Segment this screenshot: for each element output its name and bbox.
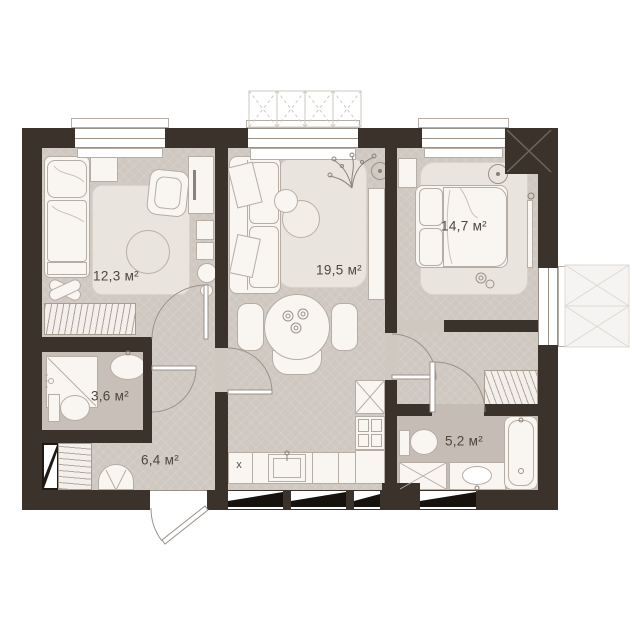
- dining-chair: [237, 303, 264, 351]
- doorway-hall: [385, 333, 397, 380]
- coffee-table-small: [274, 189, 298, 213]
- burner: [371, 419, 382, 432]
- sink: [110, 354, 146, 380]
- burner: [358, 434, 369, 447]
- floor-plan: 12,3 м² 19,5 м² 14,7 м² 3,6 м² 6,4 м² 5,…: [0, 0, 632, 632]
- room-label-bathroom: 5,2 м²: [445, 434, 483, 449]
- bed-throw: [47, 262, 87, 275]
- toilet-bowl: [60, 395, 90, 421]
- wall-left: [22, 128, 42, 510]
- toilet-tank: [399, 430, 410, 456]
- room-label-living-room: 19,5 м²: [316, 263, 362, 278]
- bed-pillow: [47, 160, 87, 198]
- wall-child-shower: [42, 337, 152, 352]
- window: [248, 128, 358, 148]
- window-sill: [246, 120, 360, 128]
- window-sill: [418, 118, 509, 128]
- wall-child-living: [215, 148, 228, 490]
- armchair-cushion: [153, 176, 182, 211]
- wall-kitchen-hall: [385, 380, 397, 490]
- counter-seam: [338, 453, 339, 483]
- wall-shower-right: [143, 352, 152, 430]
- burner: [371, 434, 382, 447]
- doorway-kitchen: [215, 348, 228, 392]
- doorway-bathroom: [432, 404, 484, 416]
- kitchen-sink-basin: [273, 458, 301, 478]
- balcony-door-window: [538, 268, 558, 345]
- bedroom-lamp-dot: [496, 172, 500, 176]
- wall-shower-hall: [42, 430, 152, 443]
- desk-drawer: [196, 220, 214, 240]
- counter-seam: [252, 453, 253, 483]
- room-label-shower-room: 3,6 м²: [91, 389, 129, 404]
- bed-pillow: [419, 188, 443, 226]
- mirror: [527, 200, 533, 268]
- floor-lamp-dot: [378, 169, 382, 173]
- toilet-tank: [48, 394, 60, 422]
- bathtub-inner: [508, 420, 534, 486]
- counter-end: [355, 450, 385, 484]
- balcony-right: [565, 265, 629, 347]
- bed-pillow: [419, 228, 443, 266]
- rug-circle-decor: [126, 230, 170, 274]
- bed-blanket: [47, 200, 87, 262]
- counter-seam: [312, 453, 313, 483]
- corner-column: [505, 128, 558, 174]
- toy-icon: [200, 284, 213, 297]
- wall-shelf: [368, 188, 385, 300]
- window-sill: [71, 118, 169, 128]
- entrance-door: [151, 506, 208, 544]
- desk-chair: [197, 263, 217, 283]
- wardrobe: [44, 303, 136, 335]
- bedside-shelf: [90, 156, 118, 182]
- bath-sink: [462, 466, 492, 485]
- stove-marker: х: [236, 459, 242, 471]
- wall-bath-right: [484, 404, 538, 416]
- wall-living-bedroom: [385, 148, 397, 333]
- wall-bottom-pillar: [382, 483, 420, 510]
- nightstand: [398, 158, 417, 188]
- burner: [358, 419, 369, 432]
- hall-wardrobe: [58, 443, 92, 490]
- doorway-bedroom: [397, 320, 444, 332]
- entrance-opening: [150, 490, 207, 510]
- shaft-void: [42, 443, 58, 490]
- room-label-child-bedroom: 12,3 м²: [93, 269, 139, 284]
- radiator: [250, 148, 356, 160]
- wall-bedroom-hall: [444, 320, 538, 332]
- room-label-hallway: 6,4 м²: [141, 453, 179, 468]
- toilet-bowl: [410, 429, 438, 455]
- tall-cabinet: [355, 380, 385, 414]
- bathtub-drain: [518, 468, 524, 474]
- radiator: [424, 148, 503, 158]
- desk: [188, 156, 214, 214]
- window: [422, 128, 505, 148]
- dining-chair: [331, 303, 358, 351]
- dining-table: [264, 294, 330, 360]
- window-sill: [558, 266, 566, 347]
- room-label-bedroom: 14,7 м²: [441, 219, 487, 234]
- desk-drawer: [196, 242, 214, 260]
- radiator: [77, 148, 163, 158]
- monitor: [193, 170, 196, 200]
- wall-bottom: [22, 490, 558, 510]
- window: [75, 128, 165, 148]
- wall-bath-left: [397, 404, 432, 416]
